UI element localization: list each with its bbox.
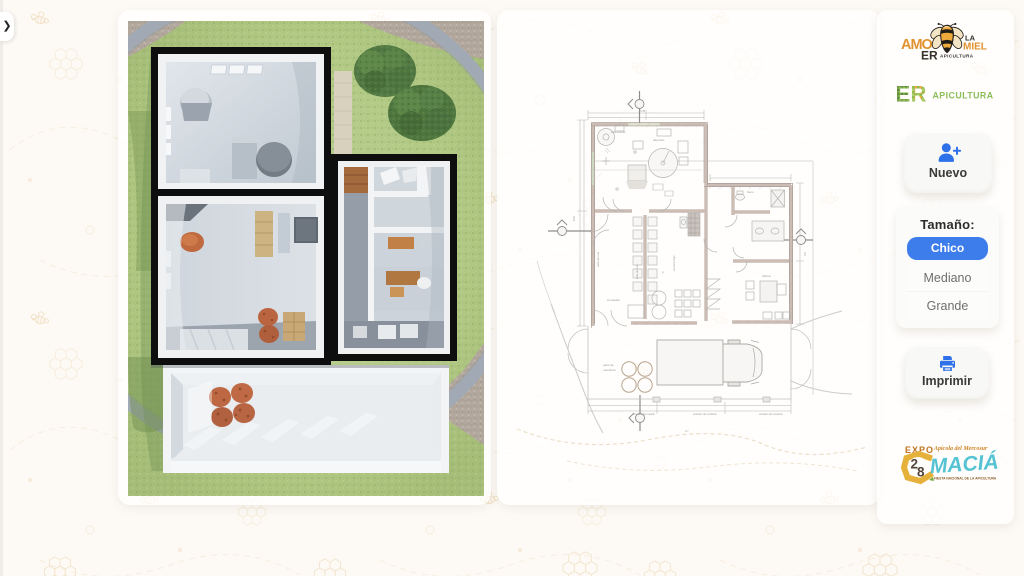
- svg-text:APICULTURA: APICULTURA: [940, 54, 974, 59]
- svg-text:8: 8: [917, 465, 925, 480]
- svg-text:p.: p.: [662, 270, 665, 274]
- svg-text:sala de cria: sala de cria: [596, 251, 600, 267]
- svg-text:sala de extr.: sala de extr.: [635, 264, 639, 279]
- svg-text:R: R: [911, 82, 927, 106]
- svg-text:maniobra: maniobra: [603, 368, 616, 372]
- svg-text:veredon tip emulsion: veredon tip emulsion: [693, 412, 717, 416]
- svg-text:envasado: envasado: [607, 298, 620, 302]
- svg-text:deposito: deposito: [653, 138, 665, 142]
- svg-text:camara frigo: camara frigo: [672, 255, 676, 271]
- svg-text:MACIÁ: MACIÁ: [929, 451, 999, 479]
- svg-text:ER: ER: [921, 49, 938, 63]
- svg-text:patio de: patio de: [603, 363, 614, 367]
- svg-text:bano: bano: [747, 190, 754, 194]
- svg-text:8.05: 8.05: [572, 215, 576, 221]
- svg-text:oficina: oficina: [762, 274, 771, 278]
- svg-text:4.7: 4.7: [685, 429, 689, 433]
- svg-text:veredon tip maquin: veredon tip maquin: [633, 412, 656, 416]
- svg-text:E: E: [897, 82, 910, 106]
- svg-text:4.6: 4.6: [803, 252, 807, 256]
- svg-text:veredon tip emulsion: veredon tip emulsion: [759, 412, 783, 416]
- svg-text:5.45: 5.45: [640, 109, 646, 113]
- svg-text:sala extrac.: sala extrac.: [611, 130, 627, 134]
- svg-text:APICULTURA: APICULTURA: [933, 91, 994, 101]
- svg-text:MIEL: MIEL: [963, 42, 987, 53]
- svg-text:FIESTA NACIONAL DE LA APICULTU: FIESTA NACIONAL DE LA APICULTURA: [934, 477, 997, 481]
